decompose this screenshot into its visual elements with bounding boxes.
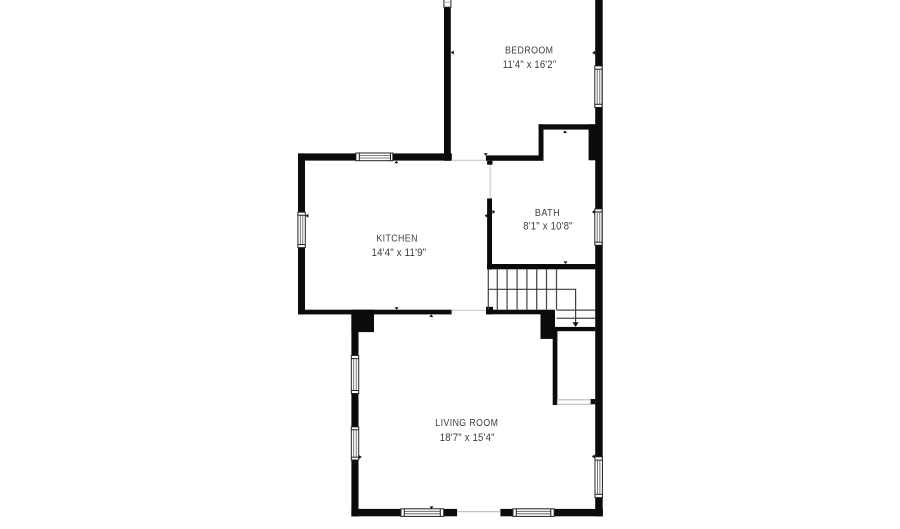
svg-text:BATH: BATH: [535, 208, 560, 219]
svg-text:14'4" x 11'9": 14'4" x 11'9": [372, 247, 427, 259]
svg-text:8'1" x 10'8": 8'1" x 10'8": [523, 221, 573, 233]
svg-text:BEDROOM: BEDROOM: [505, 45, 554, 56]
svg-text:KITCHEN: KITCHEN: [376, 234, 418, 245]
svg-text:LIVING ROOM: LIVING ROOM: [435, 418, 498, 429]
svg-text:18'7" x 15'4": 18'7" x 15'4": [440, 432, 495, 444]
svg-text:11'4" x 16'2": 11'4" x 16'2": [503, 59, 557, 71]
